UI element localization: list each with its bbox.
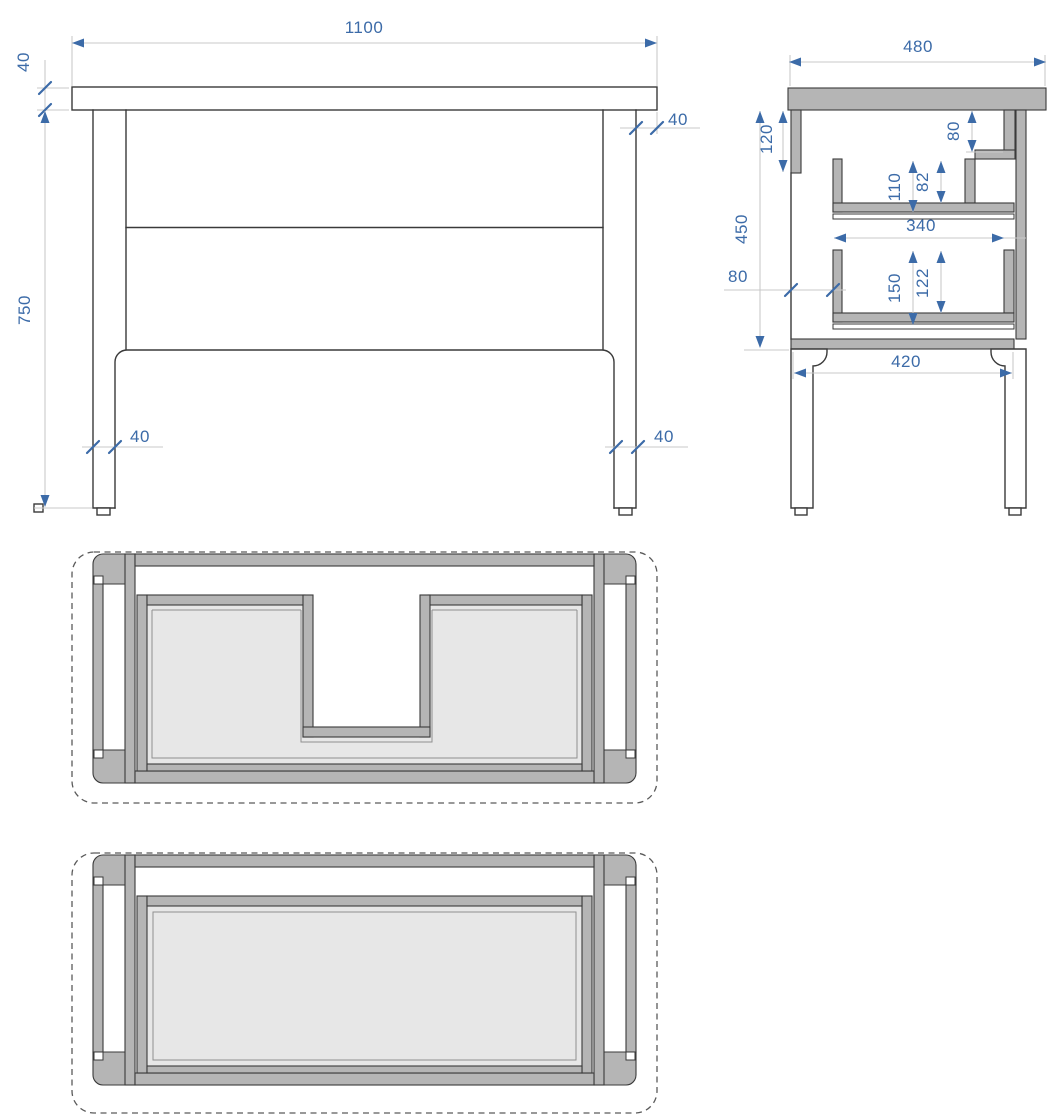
arrowhead-left-icon <box>834 234 846 243</box>
arrowhead-up-icon <box>756 111 765 123</box>
dim-front-height: 750 <box>15 111 92 508</box>
dim-label-front-leg-right: 40 <box>654 427 674 446</box>
dim-label-front-height: 750 <box>15 295 34 325</box>
arrowhead-down-icon <box>756 336 765 348</box>
arrowhead-up-icon <box>937 161 946 173</box>
plan1-notch-void <box>313 595 420 727</box>
dim-label-side-drawer2-total: 150 <box>885 273 904 303</box>
front-side-panels <box>126 110 603 349</box>
side-back-rail <box>791 110 801 173</box>
dim-side-front-rail: 80 <box>944 111 1003 152</box>
front-apron <box>115 350 614 508</box>
dim-label-side-back-gap: 80 <box>728 267 748 286</box>
plan1-top-rail <box>135 554 594 566</box>
dim-label-side-drawer1-inner: 82 <box>913 172 932 192</box>
plan1-right-outer-strip <box>626 584 636 750</box>
dim-label-side-front-rail: 80 <box>944 121 963 141</box>
dim-label-front-width: 1100 <box>345 18 384 37</box>
side-lower-runner <box>833 324 1014 329</box>
dim-side-depth: 480 <box>789 37 1046 86</box>
arrowhead-right-icon <box>1034 58 1046 67</box>
side-foot-back <box>795 508 807 515</box>
arrowhead-right-icon <box>645 39 657 48</box>
arrowhead-up-icon <box>968 111 977 123</box>
dim-front-overhang: 40 <box>620 110 700 134</box>
dim-label-side-drawer-depth: 340 <box>906 216 936 235</box>
front-view: 1100 40 750 40 <box>14 18 700 515</box>
dim-side-drawer1-inner: 82 <box>913 161 946 203</box>
plan2-notch-tr <box>626 877 635 885</box>
plan2-notch-tl <box>94 877 103 885</box>
dim-label-front-top-thickness: 40 <box>14 52 33 72</box>
front-tabletop <box>72 87 657 110</box>
dim-label-front-leg-left: 40 <box>130 427 150 446</box>
arrowhead-up-icon <box>937 251 946 263</box>
dim-side-drawer-depth: 340 <box>834 216 1026 243</box>
side-front-leg-upper <box>1016 110 1026 339</box>
plan1-notch-bl <box>94 750 103 758</box>
dim-label-side-body-height: 450 <box>732 214 751 244</box>
plan2-drawer <box>137 896 592 1073</box>
arrowhead-left-icon <box>72 39 84 48</box>
plan2-right-inner-strip <box>594 855 604 1085</box>
side-front-rail <box>1004 110 1015 152</box>
side-foot-front <box>1009 508 1021 515</box>
dim-front-leg-right: 40 <box>605 427 688 453</box>
arrowhead-down-icon <box>937 301 946 313</box>
plan1-left-outer-strip <box>93 584 103 750</box>
dim-front-width: 1100 <box>72 18 657 86</box>
plan1-right-inner-strip <box>594 554 604 783</box>
dim-label-side-drawer2-inner: 122 <box>913 268 932 298</box>
plan2-right-outer-strip <box>626 885 636 1052</box>
plan2-left-outer-strip <box>93 885 103 1052</box>
plan1-notch-tl <box>94 576 103 584</box>
dim-side-drawer2-inner: 122 <box>913 251 946 313</box>
arrowhead-up-icon <box>779 111 788 123</box>
plan1-notch-br <box>626 750 635 758</box>
arrowhead-up-icon <box>909 251 918 263</box>
arrowhead-left-icon <box>789 58 801 67</box>
plan1-notch-tr <box>626 576 635 584</box>
front-legs-outer <box>93 110 636 508</box>
dim-label-front-overhang: 40 <box>668 110 688 129</box>
plan2-notch-bl <box>94 1052 103 1060</box>
dim-front-top-thickness: 40 <box>14 52 69 116</box>
dim-front-leg-left: 40 <box>82 427 163 453</box>
plan1-left-inner-strip <box>125 554 135 783</box>
plan1-bottom-rail <box>135 771 594 783</box>
plan-view-lower-drawer <box>72 853 657 1113</box>
dim-label-side-depth: 480 <box>903 37 933 56</box>
plan2-drawer-interior <box>147 906 582 1066</box>
side-apron <box>791 339 1014 349</box>
dim-side-back-gap: 80 <box>724 267 846 296</box>
dim-label-side-leg-span: 420 <box>891 352 921 371</box>
front-foot-left <box>97 508 110 515</box>
arrowhead-down-icon <box>779 160 788 172</box>
plan2-left-inner-strip <box>125 855 135 1085</box>
drawing-canvas: 1100 40 750 40 <box>0 0 1064 1118</box>
side-view: 480 120 80 110 82 <box>724 37 1046 515</box>
plan2-notch-br <box>626 1052 635 1060</box>
plan-view-upper-drawer <box>72 552 657 803</box>
arrowhead-right-icon <box>992 234 1004 243</box>
side-tabletop <box>788 88 1046 110</box>
plan2-bottom-rail <box>135 1073 594 1085</box>
arrowhead-down-icon <box>937 191 946 203</box>
dim-side-body-height: 450 <box>732 111 789 350</box>
front-foot-right <box>619 508 632 515</box>
plan1-drawer <box>137 595 592 771</box>
dim-label-side-drawer1-total: 110 <box>885 173 904 202</box>
arrowhead-up-icon <box>909 161 918 173</box>
plan2-top-rail <box>135 855 594 867</box>
